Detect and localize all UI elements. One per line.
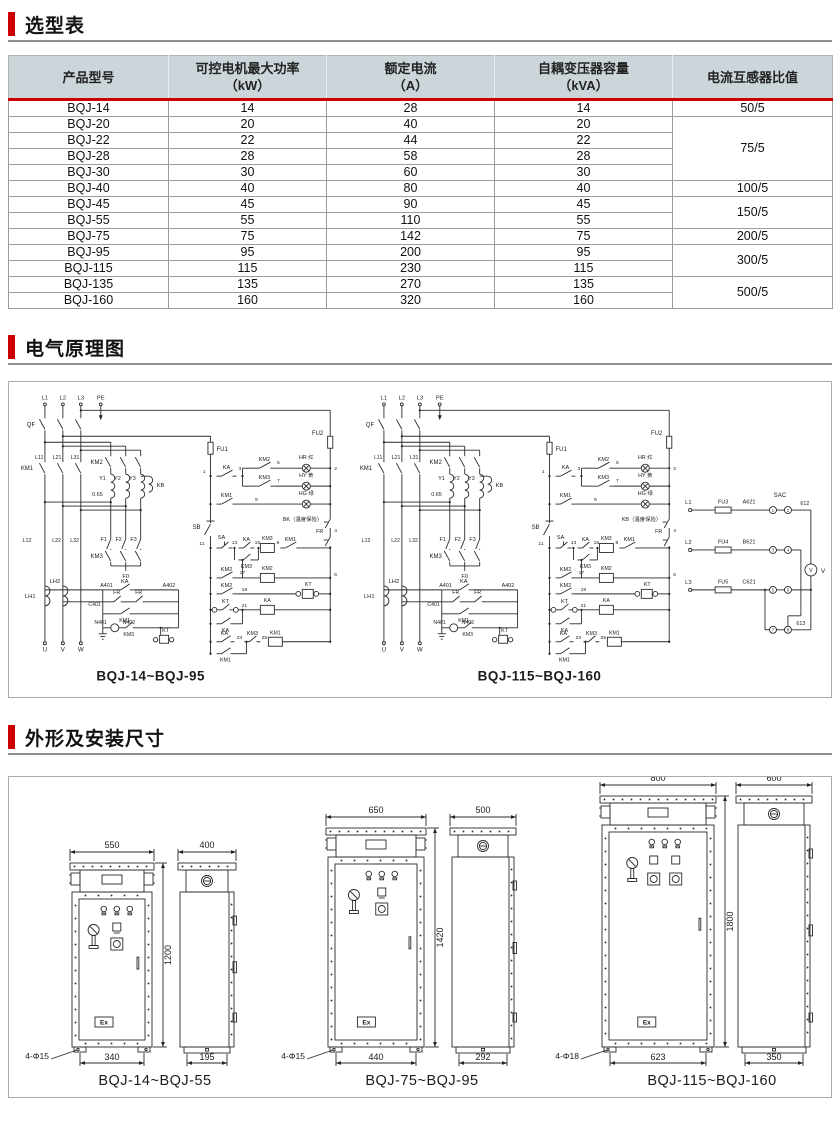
svg-text:L1: L1 bbox=[685, 500, 691, 506]
svg-text:V: V bbox=[61, 646, 66, 653]
model-cell: BQJ-160 bbox=[9, 293, 169, 309]
svg-text:BK（温度保险）: BK（温度保险） bbox=[283, 515, 322, 523]
power-cell: 55 bbox=[169, 213, 327, 229]
model-cell: BQJ-40 bbox=[9, 181, 169, 197]
svg-text:BQJ-75~BQJ-95: BQJ-75~BQJ-95 bbox=[365, 1073, 478, 1089]
svg-text:KM3: KM3 bbox=[598, 475, 609, 481]
svg-text:F3: F3 bbox=[470, 536, 476, 542]
svg-text:13: 13 bbox=[232, 539, 238, 545]
svg-text:L32: L32 bbox=[70, 537, 79, 543]
svg-text:F2: F2 bbox=[115, 536, 121, 542]
schematic-panel: L1L2L3PEQFL11L21L31KM1KM2Y1Y2Y30.65KBL12… bbox=[8, 381, 832, 698]
schematic-right: L1L2L3PEQFL11L21L31KM1KM2Y1Y2Y30.65KBL12… bbox=[350, 390, 829, 690]
svg-text:11: 11 bbox=[199, 540, 204, 546]
model-cell: BQJ-20 bbox=[9, 117, 169, 133]
svg-text:623: 623 bbox=[650, 1052, 665, 1062]
svg-text:8: 8 bbox=[276, 539, 279, 545]
svg-text:KA: KA bbox=[460, 578, 468, 584]
svg-text:1: 1 bbox=[542, 469, 545, 475]
model-cell: BQJ-22 bbox=[9, 133, 169, 149]
cabinet-group: Ex55040012003401954-Φ15BQJ-14~BQJ-55 bbox=[25, 840, 236, 1089]
svg-text:F1: F1 bbox=[440, 536, 446, 542]
svg-text:KM2: KM2 bbox=[262, 565, 273, 571]
svg-text:6: 6 bbox=[334, 571, 337, 577]
section-title-selection: 选型表 bbox=[25, 11, 85, 38]
svg-text:FR: FR bbox=[452, 589, 459, 595]
svg-text:KA: KA bbox=[562, 465, 570, 471]
svg-text:25: 25 bbox=[601, 634, 607, 640]
svg-text:U: U bbox=[382, 646, 386, 653]
power-cell: 40 bbox=[169, 181, 327, 197]
svg-text:8: 8 bbox=[616, 539, 619, 545]
svg-text:1: 1 bbox=[203, 469, 206, 475]
svg-text:KM2: KM2 bbox=[560, 582, 571, 588]
svg-text:FR: FR bbox=[316, 529, 323, 535]
svg-text:613: 613 bbox=[797, 620, 806, 626]
svg-text:BQJ-14~BQJ-55: BQJ-14~BQJ-55 bbox=[98, 1073, 211, 1089]
svg-text:23: 23 bbox=[237, 634, 243, 640]
svg-text:25: 25 bbox=[262, 634, 268, 640]
svg-text:KA: KA bbox=[223, 465, 231, 471]
svg-text:KM3: KM3 bbox=[123, 631, 134, 637]
svg-text:8: 8 bbox=[787, 627, 790, 632]
column-header: 可控电机最大功率（kW） bbox=[169, 56, 327, 100]
svg-text:KM3: KM3 bbox=[601, 536, 612, 542]
svg-text:6: 6 bbox=[673, 571, 676, 577]
svg-text:L2: L2 bbox=[60, 395, 66, 401]
capacity-cell: 115 bbox=[495, 261, 673, 277]
model-cell: BQJ-75 bbox=[9, 229, 169, 245]
cabinet-group: Ex80060018006233504-Φ18BQJ-115~BQJ-160 bbox=[555, 777, 812, 1089]
table-row: BQJ-757514275200/5 bbox=[9, 229, 833, 245]
svg-text:3: 3 bbox=[238, 466, 241, 472]
power-cell: 75 bbox=[169, 229, 327, 245]
svg-text:FR: FR bbox=[113, 589, 120, 595]
capacity-cell: 45 bbox=[495, 197, 673, 213]
capacity-cell: 30 bbox=[495, 165, 673, 181]
svg-text:4-Φ15: 4-Φ15 bbox=[25, 1051, 49, 1061]
svg-text:195: 195 bbox=[199, 1052, 214, 1062]
ratio-cell: 500/5 bbox=[673, 277, 833, 309]
svg-text:15: 15 bbox=[255, 539, 261, 545]
svg-text:KM3: KM3 bbox=[247, 630, 258, 636]
schematic-left: L1L2L3PEQFL11L21L31KM1KM2Y1Y2Y30.65KBL12… bbox=[11, 390, 350, 690]
svg-text:KA: KA bbox=[603, 597, 610, 603]
svg-text:L2: L2 bbox=[685, 539, 691, 545]
power-cell: 22 bbox=[169, 133, 327, 149]
current-cell: 200 bbox=[327, 245, 495, 261]
svg-text:400: 400 bbox=[199, 840, 214, 850]
svg-text:KM3: KM3 bbox=[430, 553, 443, 559]
current-cell: 110 bbox=[327, 213, 495, 229]
current-cell: 270 bbox=[327, 277, 495, 293]
model-cell: BQJ-115 bbox=[9, 261, 169, 277]
section-header-dimensions: 外形及安装尺寸 bbox=[8, 721, 832, 755]
svg-text:7: 7 bbox=[772, 627, 775, 632]
svg-text:KM3: KM3 bbox=[259, 475, 270, 481]
svg-text:L1: L1 bbox=[42, 395, 48, 401]
svg-text:L31: L31 bbox=[71, 455, 80, 461]
svg-text:FR: FR bbox=[474, 589, 481, 595]
svg-text:SB: SB bbox=[193, 525, 201, 531]
svg-text:L32: L32 bbox=[409, 537, 418, 543]
svg-text:KT: KT bbox=[162, 627, 170, 633]
svg-text:L1: L1 bbox=[381, 395, 387, 401]
svg-text:KM3: KM3 bbox=[262, 536, 273, 542]
current-cell: 44 bbox=[327, 133, 495, 149]
svg-text:19: 19 bbox=[242, 586, 248, 592]
table-row: BQJ-2020402075/5 bbox=[9, 117, 833, 133]
svg-text:L3: L3 bbox=[685, 579, 691, 585]
svg-text:KM1: KM1 bbox=[609, 630, 620, 636]
svg-text:L12: L12 bbox=[22, 537, 31, 543]
section-header-selection: 选型表 bbox=[8, 8, 832, 42]
current-cell: 28 bbox=[327, 100, 495, 117]
table-row: BQJ-40408040100/5 bbox=[9, 181, 833, 197]
selection-table-head: 产品型号可控电机最大功率（kW）额定电流（A）自耦变压器容量（kVA）电流互感器… bbox=[9, 56, 833, 100]
model-cell: BQJ-95 bbox=[9, 245, 169, 261]
section-accent-bar bbox=[8, 12, 15, 36]
svg-text:KM2: KM2 bbox=[221, 582, 232, 588]
svg-text:SA: SA bbox=[557, 535, 565, 541]
current-cell: 320 bbox=[327, 293, 495, 309]
ratio-cell: 300/5 bbox=[673, 245, 833, 277]
svg-text:U: U bbox=[43, 646, 47, 653]
svg-text:BQJ-14~BQJ-95: BQJ-14~BQJ-95 bbox=[96, 668, 205, 683]
svg-text:500: 500 bbox=[475, 805, 490, 815]
section-title-schematic: 电气原理图 bbox=[25, 334, 125, 361]
svg-text:5: 5 bbox=[772, 587, 775, 592]
ratio-cell: 50/5 bbox=[673, 100, 833, 117]
capacity-cell: 75 bbox=[495, 229, 673, 245]
svg-text:FU1: FU1 bbox=[556, 447, 568, 453]
svg-text:550: 550 bbox=[104, 840, 119, 850]
svg-text:800: 800 bbox=[650, 777, 665, 783]
svg-text:KM1: KM1 bbox=[21, 466, 34, 472]
column-header: 自耦变压器容量（kVA） bbox=[495, 56, 673, 100]
power-cell: 14 bbox=[169, 100, 327, 117]
model-cell: BQJ-45 bbox=[9, 197, 169, 213]
svg-text:B621: B621 bbox=[743, 539, 756, 545]
current-cell: 230 bbox=[327, 261, 495, 277]
svg-text:F3: F3 bbox=[130, 536, 136, 542]
svg-text:KM3: KM3 bbox=[586, 630, 597, 636]
svg-text:KA: KA bbox=[582, 536, 590, 542]
svg-text:L22: L22 bbox=[391, 537, 400, 543]
svg-text:KM2: KM2 bbox=[430, 460, 443, 466]
catalog-page: 选型表 产品型号可控电机最大功率（kW）额定电流（A）自耦变压器容量（kVA）电… bbox=[0, 0, 840, 1125]
table-row: BQJ-135135270135500/5 bbox=[9, 277, 833, 293]
svg-text:LH2: LH2 bbox=[50, 578, 61, 584]
svg-text:6: 6 bbox=[787, 587, 790, 592]
svg-text:KM2: KM2 bbox=[90, 460, 103, 466]
svg-text:4-Φ18: 4-Φ18 bbox=[555, 1051, 579, 1061]
svg-text:KM3: KM3 bbox=[463, 631, 474, 637]
dimensions-panel: Ex55040012003401954-Φ15BQJ-14~BQJ-55Ex65… bbox=[8, 776, 832, 1098]
svg-text:KM2: KM2 bbox=[601, 565, 612, 571]
svg-text:A401: A401 bbox=[100, 582, 113, 588]
svg-text:C401: C401 bbox=[428, 601, 440, 607]
svg-text:KM1: KM1 bbox=[560, 493, 571, 499]
capacity-cell: 22 bbox=[495, 133, 673, 149]
svg-text:Y1: Y1 bbox=[99, 476, 106, 482]
svg-text:3: 3 bbox=[578, 466, 581, 472]
svg-text:L3: L3 bbox=[78, 395, 84, 401]
svg-text:A621: A621 bbox=[743, 499, 756, 505]
svg-text:W: W bbox=[417, 646, 423, 653]
svg-text:BQJ-115~BQJ-160: BQJ-115~BQJ-160 bbox=[478, 668, 602, 683]
svg-text:A402: A402 bbox=[502, 582, 515, 588]
table-row: BQJ-45459045150/5 bbox=[9, 197, 833, 213]
current-cell: 142 bbox=[327, 229, 495, 245]
svg-text:N402: N402 bbox=[123, 619, 135, 625]
svg-text:4: 4 bbox=[334, 528, 337, 534]
svg-text:KT: KT bbox=[501, 627, 509, 633]
svg-text:L21: L21 bbox=[392, 455, 401, 461]
ratio-cell: 75/5 bbox=[673, 117, 833, 181]
model-cell: BQJ-28 bbox=[9, 149, 169, 165]
svg-text:F2: F2 bbox=[455, 536, 461, 542]
svg-text:FU1: FU1 bbox=[216, 447, 228, 453]
svg-text:C621: C621 bbox=[743, 579, 756, 585]
svg-text:L31: L31 bbox=[410, 455, 419, 461]
section-title-dimensions: 外形及安装尺寸 bbox=[25, 724, 165, 751]
svg-text:N402: N402 bbox=[462, 619, 474, 625]
svg-text:V: V bbox=[400, 646, 405, 653]
svg-text:KB: KB bbox=[157, 483, 165, 489]
capacity-cell: 160 bbox=[495, 293, 673, 309]
svg-text:Y3: Y3 bbox=[468, 476, 475, 482]
svg-text:KA: KA bbox=[121, 578, 129, 584]
column-header: 额定电流（A） bbox=[327, 56, 495, 100]
svg-text:L21: L21 bbox=[53, 455, 62, 461]
svg-text:FR: FR bbox=[655, 529, 662, 535]
svg-text:HY 黄: HY 黄 bbox=[638, 471, 653, 479]
svg-text:QF: QF bbox=[366, 422, 375, 428]
power-cell: 95 bbox=[169, 245, 327, 261]
svg-text:KM1: KM1 bbox=[285, 536, 296, 542]
svg-text:A401: A401 bbox=[439, 582, 452, 588]
svg-text:L2: L2 bbox=[399, 395, 405, 401]
svg-text:V: V bbox=[809, 568, 813, 574]
selection-table: 产品型号可控电机最大功率（kW）额定电流（A）自耦变压器容量（kVA）电流互感器… bbox=[8, 55, 833, 309]
capacity-cell: 55 bbox=[495, 213, 673, 229]
svg-text:KT: KT bbox=[305, 581, 313, 587]
svg-text:KA: KA bbox=[264, 597, 271, 603]
svg-text:3: 3 bbox=[772, 547, 775, 552]
current-cell: 80 bbox=[327, 181, 495, 197]
svg-text:KM1: KM1 bbox=[220, 657, 231, 663]
svg-text:HR 红: HR 红 bbox=[299, 453, 314, 461]
svg-text:21: 21 bbox=[242, 602, 248, 608]
svg-text:HG 绿: HG 绿 bbox=[299, 489, 315, 497]
svg-text:350: 350 bbox=[766, 1052, 781, 1062]
svg-text:KM1: KM1 bbox=[624, 536, 635, 542]
svg-text:9: 9 bbox=[255, 497, 258, 503]
capacity-cell: 28 bbox=[495, 149, 673, 165]
svg-text:15: 15 bbox=[594, 539, 600, 545]
current-cell: 58 bbox=[327, 149, 495, 165]
svg-text:FR: FR bbox=[135, 589, 142, 595]
svg-text:5: 5 bbox=[616, 460, 619, 466]
svg-text:KM1: KM1 bbox=[360, 466, 373, 472]
column-header: 电流互感器比值 bbox=[673, 56, 833, 100]
svg-text:KM3: KM3 bbox=[90, 553, 103, 559]
svg-text:KB（温度保险）: KB（温度保险） bbox=[622, 515, 661, 523]
power-cell: 135 bbox=[169, 277, 327, 293]
svg-text:1200: 1200 bbox=[163, 945, 173, 965]
capacity-cell: 135 bbox=[495, 277, 673, 293]
svg-text:0.65: 0.65 bbox=[431, 492, 441, 498]
ratio-cell: 200/5 bbox=[673, 229, 833, 245]
svg-text:FU2: FU2 bbox=[651, 431, 663, 437]
svg-text:PE: PE bbox=[97, 395, 105, 401]
capacity-cell: 95 bbox=[495, 245, 673, 261]
svg-text:KT: KT bbox=[644, 581, 652, 587]
svg-text:HG 绿: HG 绿 bbox=[638, 489, 654, 497]
svg-text:1: 1 bbox=[772, 507, 775, 512]
section-header-schematic: 电气原理图 bbox=[8, 331, 832, 365]
svg-text:KM2: KM2 bbox=[221, 566, 232, 572]
svg-text:Ex: Ex bbox=[362, 1020, 370, 1027]
svg-text:FU4: FU4 bbox=[718, 539, 729, 545]
svg-text:1800: 1800 bbox=[725, 911, 735, 931]
svg-text:440: 440 bbox=[368, 1052, 383, 1062]
svg-text:N401: N401 bbox=[94, 619, 106, 625]
svg-text:7: 7 bbox=[277, 478, 280, 484]
svg-text:L12: L12 bbox=[362, 537, 371, 543]
selection-table-body: BQJ-1414281450/5BQJ-2020402075/5BQJ-2222… bbox=[9, 100, 833, 309]
svg-text:L11: L11 bbox=[374, 455, 382, 461]
power-cell: 115 bbox=[169, 261, 327, 277]
svg-text:L11: L11 bbox=[35, 455, 43, 461]
capacity-cell: 20 bbox=[495, 117, 673, 133]
svg-text:KM1: KM1 bbox=[221, 493, 232, 499]
section-accent-bar bbox=[8, 725, 15, 749]
svg-text:9: 9 bbox=[594, 497, 597, 503]
svg-text:2: 2 bbox=[673, 466, 676, 472]
svg-text:C401: C401 bbox=[88, 601, 100, 607]
model-cell: BQJ-30 bbox=[9, 165, 169, 181]
svg-text:612: 612 bbox=[801, 501, 810, 507]
current-cell: 90 bbox=[327, 197, 495, 213]
power-cell: 160 bbox=[169, 293, 327, 309]
svg-text:W: W bbox=[78, 646, 84, 653]
svg-text:13: 13 bbox=[571, 539, 577, 545]
svg-text:SB: SB bbox=[532, 525, 540, 531]
table-row: BQJ-959520095300/5 bbox=[9, 245, 833, 261]
svg-text:KM1: KM1 bbox=[270, 630, 281, 636]
power-cell: 30 bbox=[169, 165, 327, 181]
svg-text:0.65: 0.65 bbox=[92, 492, 102, 498]
current-cell: 60 bbox=[327, 165, 495, 181]
svg-text:Y2: Y2 bbox=[114, 476, 121, 482]
svg-text:QF: QF bbox=[27, 422, 36, 428]
svg-text:Ex: Ex bbox=[643, 1020, 651, 1027]
svg-text:KM1: KM1 bbox=[559, 657, 570, 663]
cabinet-drawings: Ex55040012003401954-Φ15BQJ-14~BQJ-55Ex65… bbox=[10, 777, 830, 1097]
svg-text:PE: PE bbox=[436, 395, 444, 401]
svg-text:SAC: SAC bbox=[774, 492, 787, 499]
svg-text:HY 黄: HY 黄 bbox=[299, 471, 314, 479]
power-cell: 28 bbox=[169, 149, 327, 165]
svg-text:L3: L3 bbox=[417, 395, 423, 401]
svg-text:LH2: LH2 bbox=[389, 578, 400, 584]
svg-text:KM2: KM2 bbox=[560, 566, 571, 572]
svg-text:KT: KT bbox=[222, 598, 230, 604]
svg-text:KA: KA bbox=[221, 630, 229, 636]
svg-text:LH1: LH1 bbox=[25, 593, 36, 599]
model-cell: BQJ-14 bbox=[9, 100, 169, 117]
svg-text:HR 红: HR 红 bbox=[638, 453, 653, 461]
svg-text:KT: KT bbox=[561, 598, 569, 604]
svg-text:340: 340 bbox=[104, 1052, 119, 1062]
svg-text:1420: 1420 bbox=[435, 927, 445, 947]
svg-text:KM2: KM2 bbox=[259, 457, 270, 463]
svg-text:7: 7 bbox=[616, 478, 619, 484]
power-cell: 20 bbox=[169, 117, 327, 133]
svg-text:BQJ-115~BQJ-160: BQJ-115~BQJ-160 bbox=[647, 1073, 776, 1089]
svg-text:Y3: Y3 bbox=[129, 476, 136, 482]
svg-text:V: V bbox=[821, 567, 826, 574]
svg-text:L22: L22 bbox=[52, 537, 61, 543]
svg-text:FU3: FU3 bbox=[718, 499, 729, 505]
svg-text:KA: KA bbox=[243, 536, 251, 542]
model-cell: BQJ-55 bbox=[9, 213, 169, 229]
svg-text:11: 11 bbox=[539, 540, 544, 546]
svg-text:292: 292 bbox=[475, 1052, 490, 1062]
svg-text:FU2: FU2 bbox=[312, 431, 324, 437]
table-row: BQJ-1414281450/5 bbox=[9, 100, 833, 117]
svg-text:SA: SA bbox=[218, 535, 226, 541]
svg-text:5: 5 bbox=[277, 460, 280, 466]
svg-text:KA: KA bbox=[560, 630, 568, 636]
svg-text:LH1: LH1 bbox=[364, 593, 375, 599]
svg-text:Ex: Ex bbox=[100, 1020, 108, 1027]
svg-text:2: 2 bbox=[787, 507, 790, 512]
svg-text:N401: N401 bbox=[434, 619, 446, 625]
model-cell: BQJ-135 bbox=[9, 277, 169, 293]
svg-text:4: 4 bbox=[787, 547, 790, 552]
svg-text:FU5: FU5 bbox=[718, 579, 729, 585]
svg-text:19: 19 bbox=[581, 586, 587, 592]
svg-text:21: 21 bbox=[581, 602, 587, 608]
svg-text:4: 4 bbox=[673, 528, 676, 534]
svg-text:600: 600 bbox=[766, 777, 781, 783]
cabinet-group: Ex65050014204402924-Φ15BQJ-75~BQJ-95 bbox=[281, 805, 516, 1089]
svg-text:A402: A402 bbox=[163, 582, 176, 588]
svg-text:Y1: Y1 bbox=[438, 476, 445, 482]
svg-text:4-Φ15: 4-Φ15 bbox=[281, 1051, 305, 1061]
column-header: 产品型号 bbox=[9, 56, 169, 100]
svg-text:650: 650 bbox=[368, 805, 383, 815]
capacity-cell: 14 bbox=[495, 100, 673, 117]
section-accent-bar bbox=[8, 335, 15, 359]
svg-text:2: 2 bbox=[334, 466, 337, 472]
ratio-cell: 100/5 bbox=[673, 181, 833, 197]
power-cell: 45 bbox=[169, 197, 327, 213]
svg-text:KB: KB bbox=[496, 483, 504, 489]
svg-text:F1: F1 bbox=[100, 536, 106, 542]
capacity-cell: 40 bbox=[495, 181, 673, 197]
current-cell: 40 bbox=[327, 117, 495, 133]
ratio-cell: 150/5 bbox=[673, 197, 833, 229]
svg-text:KM2: KM2 bbox=[598, 457, 609, 463]
svg-text:Y2: Y2 bbox=[453, 476, 460, 482]
svg-text:23: 23 bbox=[576, 634, 582, 640]
